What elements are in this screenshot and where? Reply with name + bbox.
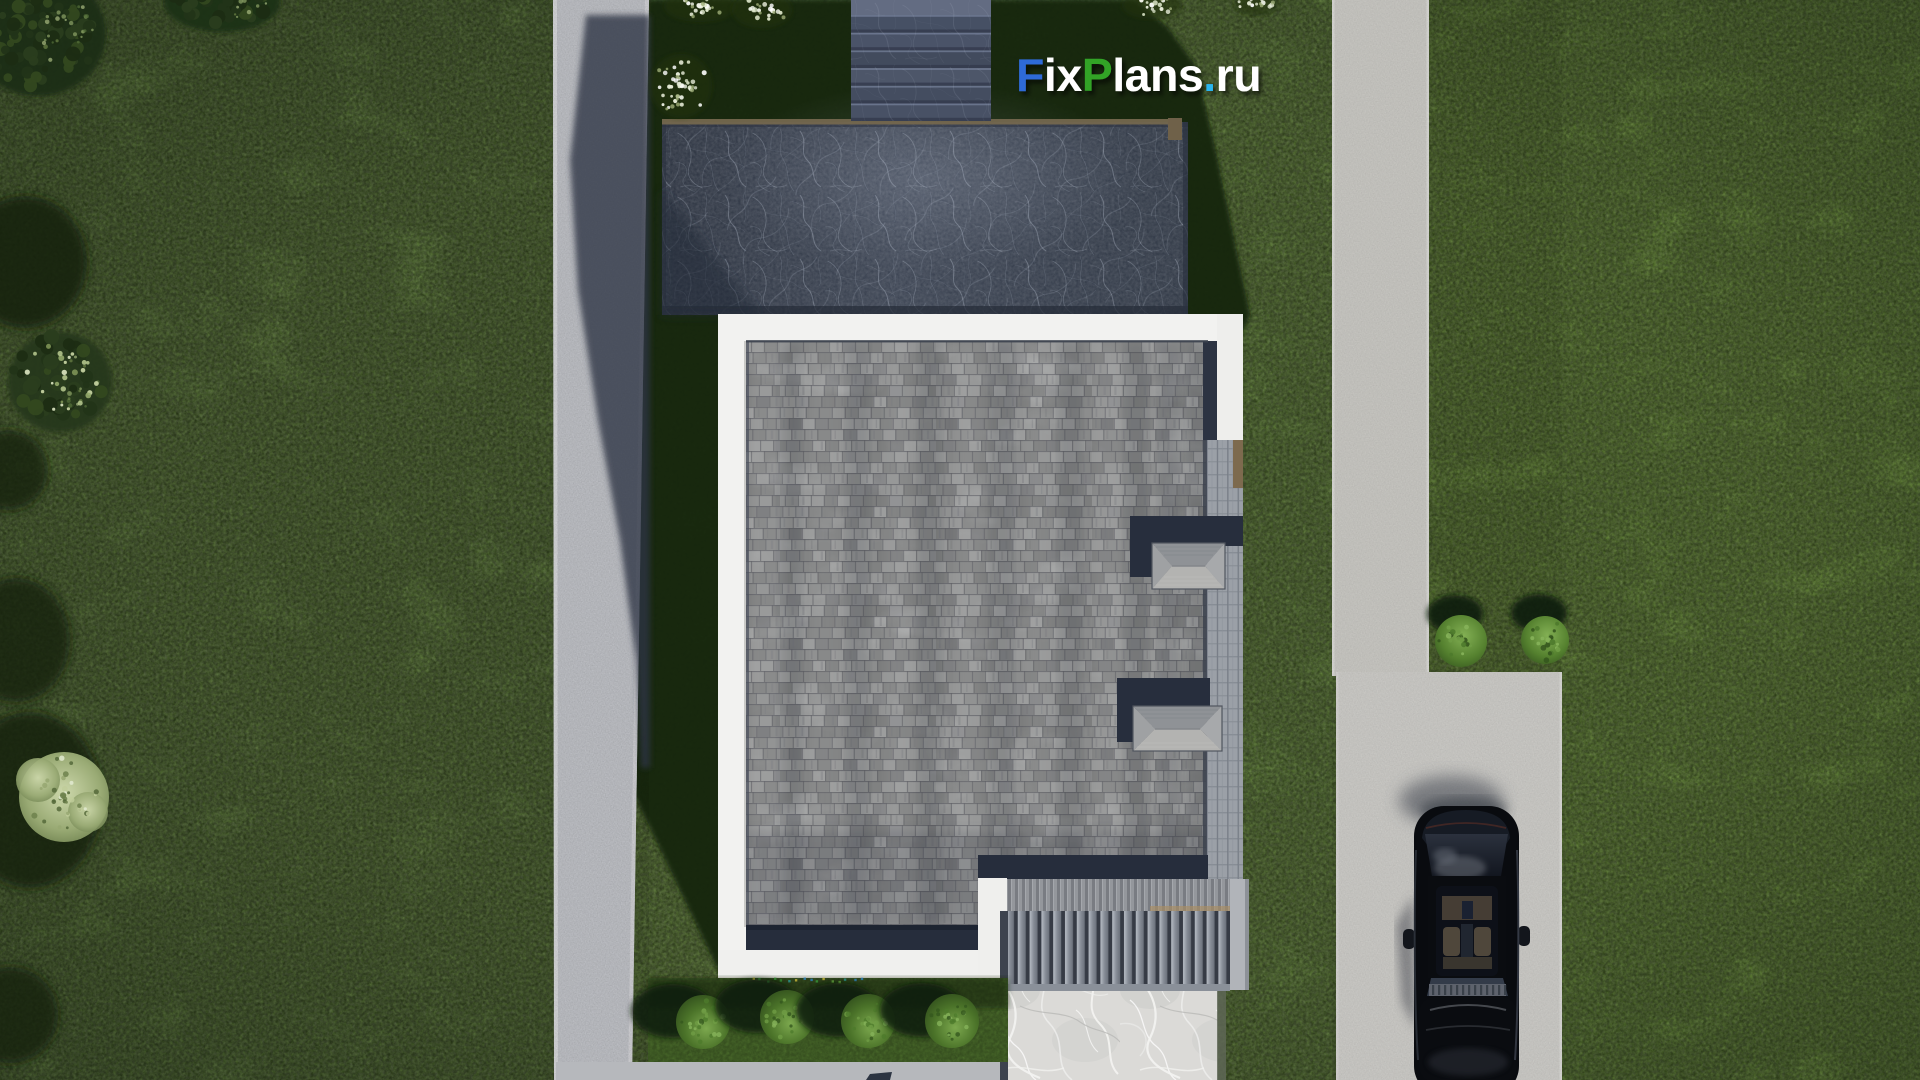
svg-text:FixPlans.ru: FixPlans.ru	[1016, 49, 1261, 101]
